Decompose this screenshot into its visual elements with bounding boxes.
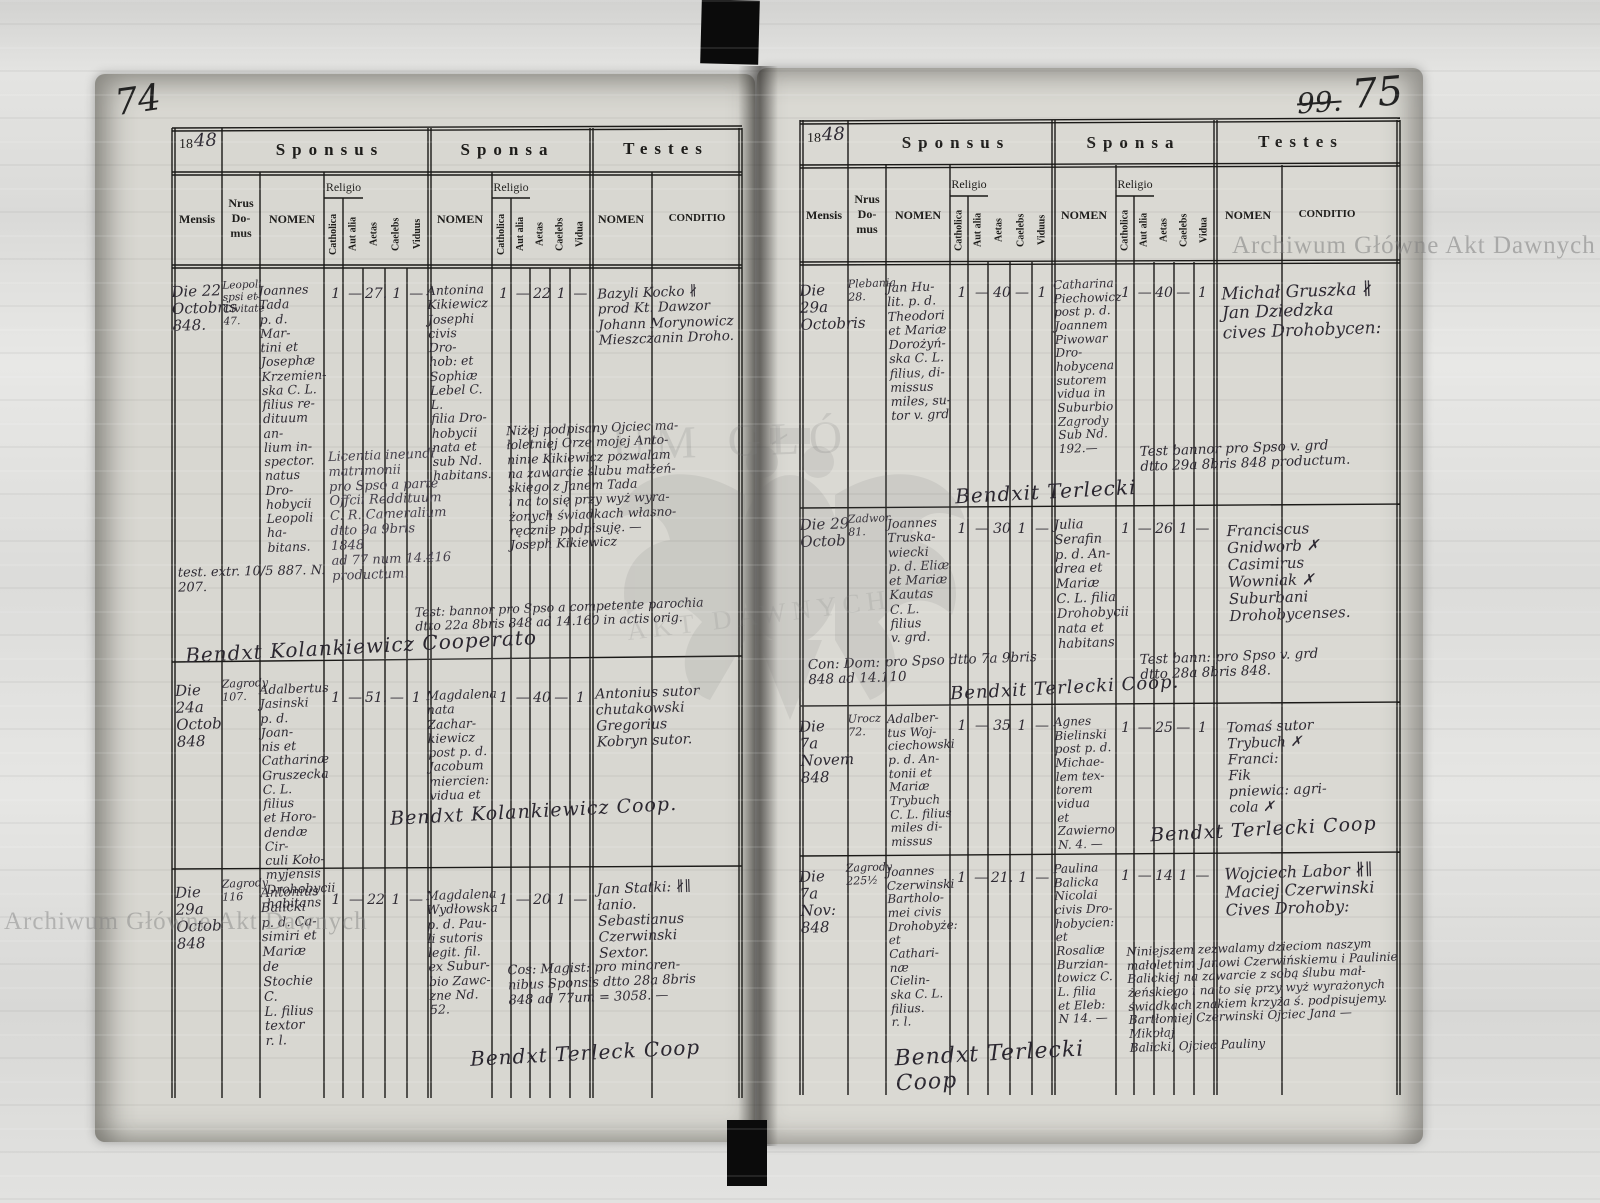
- val-caelebs: 1: [1012, 521, 1032, 537]
- entry-sponsa-values: 1 — 25 — 1: [1116, 720, 1212, 736]
- col-header-nrus-left: Nrus Do- mus: [222, 196, 260, 241]
- year-handwritten-right: 48: [822, 125, 846, 146]
- val-aetas: 51.: [365, 690, 387, 706]
- val-viduus: —: [406, 892, 426, 908]
- vlabel-caelebs-sponsa-left: Caelebs: [550, 203, 570, 265]
- note-magistrate: Cos: Magist: pro minoren- nibus Sponsis …: [507, 956, 758, 1009]
- val-caelebs: 1: [552, 892, 571, 908]
- val-aut-alia: —: [1135, 720, 1154, 736]
- val-aut-alia: —: [1135, 285, 1154, 301]
- header-sponsus-right: Sponsus: [866, 133, 1046, 153]
- col-header-nomen-sponsus-left: NOMEN: [260, 212, 324, 227]
- vlabel-vidua-sponsa-right: Vidua: [1194, 200, 1214, 260]
- val-caelebs: 1: [1174, 868, 1193, 884]
- vlabel-aetas-sponsa-left: Aetas: [530, 203, 550, 265]
- col-header-religio-sponsus-left: Religio: [324, 180, 363, 195]
- col-header-mensis-left: Mensis: [172, 212, 222, 227]
- val-aetas: 40: [992, 285, 1012, 301]
- val-viduus: —: [1032, 718, 1052, 734]
- val-catholica: 1: [952, 285, 972, 301]
- entry-house-number: Zagrody 225½: [846, 861, 889, 888]
- val-caelebs: 1: [1013, 870, 1032, 886]
- val-viduus: —: [407, 286, 426, 302]
- val-aetas: 40: [1154, 285, 1173, 301]
- page-number-left: 74: [112, 77, 163, 124]
- val-aut-alia: —: [1135, 868, 1154, 884]
- val-aetas: 20: [532, 892, 551, 908]
- val-catholica: 1: [952, 521, 972, 537]
- year-handwritten-left: 48: [194, 131, 218, 152]
- col-header-religio-sponsa-left: Religio: [492, 180, 530, 195]
- vlabel-catholica-sponsus-right: Catholica: [950, 200, 968, 260]
- val-aut-alia: —: [345, 286, 364, 302]
- val-vidua: —: [571, 286, 590, 302]
- val-caelebs: —: [552, 690, 571, 706]
- vlabel-caelebs-sponsus-right: Caelebs: [1010, 200, 1032, 260]
- entry-sponsus-name: Adalber- tus Woj- ciechowski p. d. An- t…: [887, 711, 954, 850]
- header-sponsa-left: Sponsa: [430, 140, 585, 160]
- val-caelebs: 1: [1012, 718, 1032, 734]
- val-aetas: 26: [1154, 521, 1173, 537]
- vlabel-catholica-sponsa-left: Catholica: [492, 203, 511, 265]
- year-printed-left: 18: [179, 137, 193, 153]
- entry-sponsa-values: 1 — 14 1 —: [1116, 868, 1212, 884]
- val-catholica: 1: [1116, 868, 1135, 884]
- entry-sponsa-name: Magdalena Wydłowska p. d. Pau- li sutori…: [426, 887, 492, 1017]
- entry-sponsus-name: Joannes Tada p. d. Mar- tini et Josephæ …: [258, 282, 329, 555]
- val-vidua: —: [1193, 521, 1212, 537]
- entry-sponsus-name: Jan Hu- lit. p. d. Theodori et Mariæ Dor…: [887, 279, 954, 424]
- page-number-right-struck: 99.: [1296, 84, 1343, 120]
- col-header-nomen-sponsus-right: NOMEN: [886, 208, 950, 223]
- val-aut-alia: —: [972, 718, 992, 734]
- col-header-nrus-right: Nrus Do- mus: [848, 192, 886, 237]
- val-catholica: 1: [1116, 285, 1135, 301]
- vlabel-viduus-sponsus-right: Viduus: [1032, 200, 1052, 260]
- val-aut-alia: —: [513, 690, 532, 706]
- vlabel-catholica-sponsus-left: Catholica: [324, 203, 343, 265]
- entry-sponsa-values: 1 — 40 — 1: [494, 690, 590, 706]
- entry-mensis: Die 24a Octob 848: [175, 681, 227, 751]
- entry-testes: Tomaś sutor Trybuch ✗ Franci: Fik pniewi…: [1226, 715, 1419, 817]
- val-aut-alia: —: [1135, 521, 1154, 537]
- val-aetas: 25: [1154, 720, 1173, 736]
- entry-house-number: Zagrody 116: [222, 877, 263, 903]
- val-caelebs: 1: [552, 286, 571, 302]
- col-header-conditio-right: CONDITIO: [1282, 208, 1372, 220]
- val-viduus: 1: [1032, 285, 1052, 301]
- val-caelebs: 1: [1174, 521, 1193, 537]
- val-catholica: 1: [494, 286, 513, 302]
- val-viduus: 1: [407, 690, 426, 706]
- entry-sponsa-name: Agnes Bielinski post p. d. Michae- lem t…: [1054, 714, 1121, 853]
- val-aetas: 27.: [365, 286, 387, 302]
- entry-testes: Jan Statki: ∦∥ łanio. Sebastianus Czerwi…: [597, 877, 760, 962]
- header-sponsus-left: Sponsus: [240, 140, 420, 160]
- entry-house-number: Plebania 28.: [848, 277, 889, 303]
- entry-sponsa-name: Catharina Piechowicz post p. d. Joannem …: [1053, 277, 1119, 457]
- entry-testes: Antonius sutor chutakowski Gregorius Kob…: [595, 682, 747, 751]
- entry-sponsa-values: 1 — 40 — 1: [1116, 285, 1212, 301]
- entry-sponsus-name: Joannes Truska- wiecki p. d. Eliæ et Mar…: [887, 515, 953, 645]
- vlabel-autalia-sponsus-right: Aut alia: [968, 200, 988, 260]
- entry-testes: Bazyli Kocko ∦ prod Kt. Dawzor Johann Mo…: [597, 282, 749, 349]
- entry-mensis: Die 29 Octob: [799, 515, 854, 551]
- entry-sponsa-values: 1 — 22 1 —: [494, 286, 590, 302]
- val-aut-alia: —: [345, 690, 364, 706]
- val-aetas: 22: [366, 892, 386, 908]
- val-aut-alia: —: [513, 286, 532, 302]
- vlabel-catholica-sponsa-right: Catholica: [1116, 200, 1134, 260]
- val-catholica: 1: [326, 892, 346, 908]
- note-extract: test. extr. 10/5 887. N. 207.: [178, 563, 358, 596]
- entry-testes: Franciscus Gnidworb ✗ Casimirus Wowniak …: [1226, 517, 1409, 626]
- val-caelebs: —: [387, 690, 406, 706]
- entry-sponsa-name: Magdalena nata Zachar- kiewicz post p. d…: [426, 687, 492, 803]
- vlabel-aetas-sponsus-left: Aetas: [363, 203, 385, 265]
- val-aut-alia: —: [346, 892, 366, 908]
- year-printed-right: 18: [807, 131, 821, 147]
- col-header-nomen-testes-left: NOMEN: [590, 212, 652, 227]
- val-catholica: 1: [494, 690, 513, 706]
- entry-mensis: Die 29a Octob 848: [175, 883, 227, 953]
- entry-sponsa-name: Julia Serafin p. d. An- drea et Mariæ C.…: [1054, 517, 1121, 652]
- col-header-nomen-sponsa-right: NOMEN: [1052, 208, 1116, 223]
- entry-sponsus-values: 1 — 51. — 1: [326, 690, 426, 706]
- entry-testes: Michał Gruszka ∦ Jan Dziedzka cives Droh…: [1221, 279, 1423, 344]
- vlabel-vidua-sponsa-left: Vidua: [570, 203, 590, 265]
- vlabel-autalia-sponsa-right: Aut alia: [1134, 200, 1154, 260]
- val-caelebs: —: [1012, 285, 1032, 301]
- val-caelebs: 1: [386, 892, 406, 908]
- val-vidua: 1: [1193, 720, 1212, 736]
- entry-sponsus-name: Joannes Czerwinski Bartholo- mei civis D…: [886, 864, 954, 1030]
- val-viduus: —: [1033, 870, 1052, 886]
- vlabel-autalia-sponsa-left: Aut alia: [511, 203, 530, 265]
- val-catholica: 1: [952, 718, 972, 734]
- entry-mensis: Die 29a Octobris: [799, 281, 851, 334]
- entry-sponsus-values: 1 — 40 — 1: [952, 285, 1052, 301]
- entry-mensis: Die 7a Novem 848: [799, 717, 851, 787]
- entry-sponsus-values: 1 — 21. 1 —: [952, 870, 1052, 886]
- val-aetas: 22: [532, 286, 551, 302]
- col-header-mensis-right: Mensis: [800, 208, 848, 223]
- val-aetas: 40: [532, 690, 551, 706]
- val-aetas: 35: [992, 718, 1012, 734]
- header-testes-left: Testes: [596, 139, 736, 159]
- val-aetas: 30: [992, 521, 1012, 537]
- vlabel-autalia-sponsus-left: Aut alia: [343, 203, 363, 265]
- note-polish-consent: Niżej podpisany Ojciec ma- łoletniej Orz…: [506, 416, 750, 553]
- vlabel-caelebs-sponsa-right: Caelebs: [1174, 200, 1194, 260]
- header-sponsa-right: Sponsa: [1056, 133, 1211, 153]
- val-caelebs: 1: [387, 286, 406, 302]
- val-aut-alia: —: [513, 892, 532, 908]
- entry-sponsus-values: 1 — 27. 1 —: [326, 286, 426, 302]
- col-header-nomen-testes-right: NOMEN: [1214, 208, 1282, 223]
- entry-sponsus-name: Antonius Balicki p. d. Ca- simiri et Mar…: [260, 885, 328, 1050]
- entry-mensis: Die 22 Octobris 848.: [171, 282, 227, 335]
- val-catholica: 1: [1116, 720, 1135, 736]
- val-caelebs: —: [1174, 720, 1193, 736]
- entry-sponsa-values: 1 — 20 1 —: [494, 892, 590, 908]
- vlabel-viduus-sponsus-left: Viduus: [407, 203, 428, 265]
- entry-sponsa-values: 1 — 26 1 —: [1116, 521, 1212, 537]
- val-catholica: 1: [1116, 521, 1135, 537]
- val-vidua: 1: [1193, 285, 1212, 301]
- scanned-register-page: 74 99. 75 18 48 Sponsus Sponsa Testes Me…: [0, 0, 1600, 1203]
- val-aetas: 14: [1154, 868, 1173, 884]
- entry-sponsus-values: 1 — 22 1 —: [326, 892, 426, 908]
- entry-sponsus-values: 1 — 35 1 —: [952, 718, 1052, 734]
- vlabel-caelebs-sponsus-left: Caelebs: [385, 203, 407, 265]
- val-aut-alia: —: [972, 521, 992, 537]
- val-aetas: 21.: [991, 870, 1013, 886]
- entry-sponsus-values: 1 — 30 1 —: [952, 521, 1052, 537]
- val-viduus: —: [1032, 521, 1052, 537]
- entry-house-number: Urocz 72.: [848, 712, 889, 738]
- vlabel-aetas-sponsa-right: Aetas: [1154, 200, 1174, 260]
- entry-house-number: Zadwor 81.: [848, 512, 889, 538]
- entry-house-number: Zagrody 107.: [222, 677, 263, 703]
- page-number-right: 75: [1350, 68, 1405, 118]
- val-aut-alia: —: [972, 285, 992, 301]
- col-header-conditio-left: CONDITIO: [652, 212, 742, 224]
- col-header-religio-sponsus-right: Religio: [950, 177, 988, 192]
- val-vidua: 1: [571, 690, 590, 706]
- val-aut-alia: —: [971, 870, 990, 886]
- val-vidua: —: [1193, 868, 1212, 884]
- val-catholica: 1: [326, 690, 345, 706]
- val-catholica: 1: [326, 286, 345, 302]
- val-vidua: —: [571, 892, 590, 908]
- entry-sponsus-name: Adalbertus Jasinski p. d. Joan- nis et C…: [259, 681, 329, 911]
- vlabel-aetas-sponsus-right: Aetas: [988, 200, 1010, 260]
- val-catholica: 1: [494, 892, 513, 908]
- entry-sponsa-name: Paulina Balicka Nicolai civis Dro- hobyc…: [1053, 861, 1121, 1027]
- col-header-nomen-sponsa-left: NOMEN: [428, 212, 492, 227]
- val-caelebs: —: [1174, 285, 1193, 301]
- col-header-religio-sponsa-right: Religio: [1116, 177, 1154, 192]
- header-testes-right: Testes: [1226, 132, 1376, 152]
- entry-testes: Wojciech Labor ∦∥ Maciej Czerwinski Cive…: [1224, 858, 1436, 920]
- val-catholica: 1: [952, 870, 971, 886]
